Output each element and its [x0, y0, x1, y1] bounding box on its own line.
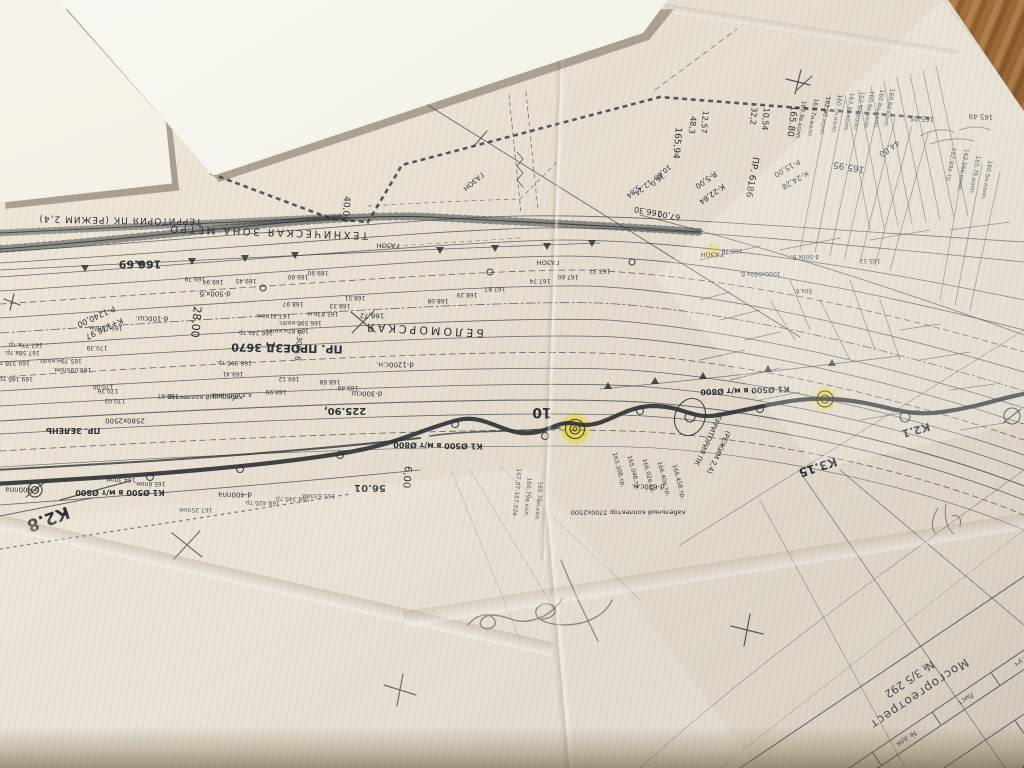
map-label: К-24,28 — [780, 169, 809, 190]
map-label: 6,00 — [400, 465, 412, 488]
paper-fold-highlight — [0, 0, 1024, 768]
map-label: 169.12 — [279, 375, 300, 381]
map-label: 165.04б.тр. — [625, 455, 640, 491]
map-label: 165.6пом. — [134, 480, 165, 486]
map-label: 168.33 — [330, 302, 351, 308]
map-label: К-22,84 — [698, 182, 726, 205]
stamp-header-row: ИзмКол.учЛист№ докПодпДата — [825, 626, 1024, 768]
map-label: ПР. 6186 — [743, 156, 759, 198]
stamp-values-row: 1300 — [783, 564, 1024, 768]
map-label: 168.42б.тр. — [244, 499, 280, 505]
map-label: 166.69 — [119, 259, 161, 270]
map-label: 163.30б.тр. — [610, 452, 625, 488]
title-block: ИзмКол.учЛист№ докПодпДата ИНЖЕНЕРНО-ТОП… — [647, 425, 1024, 768]
title-block-org: ИзмКол.учЛист№ докПодпДата Мосгоргеотрес… — [718, 541, 1024, 768]
map-label: 169.90 — [308, 269, 329, 275]
map-label: ГАЗОН — [461, 170, 484, 191]
map-label: d-300сш. — [350, 390, 383, 397]
map-label: 56.01 — [354, 482, 386, 492]
map-label: 166.79в.кол. — [522, 477, 531, 517]
map-label: К2.1 — [901, 421, 931, 439]
map-label: 166.40в.тр. — [655, 461, 670, 497]
map-label: 166.24в.тр. — [237, 329, 273, 335]
map-label: 164.82н.колп. — [265, 327, 309, 333]
map-label: d-100сш. — [136, 315, 169, 322]
map-label: 167.77в.тр. — [7, 341, 43, 347]
stamp-cell: Лист — [932, 673, 1000, 726]
stamp-cell: № док — [872, 713, 940, 766]
map-label: 167.25пом. — [177, 506, 212, 512]
map-label: 165.49 — [969, 112, 994, 120]
map-label: К2.8 — [24, 502, 71, 533]
map-label: 10 — [532, 405, 551, 419]
map-label: 162.9н.колп. — [852, 91, 865, 131]
map-label: 165.79н.колп. — [38, 357, 82, 363]
map-label: R-5,00 — [694, 170, 718, 190]
map-label: 165.83в.м — [308, 310, 339, 316]
stamp-document-number: № 3/5 292 — [882, 658, 937, 701]
map-label: Р-1240,00 — [76, 304, 116, 328]
plan-linework — [0, 0, 1024, 768]
map-label: 165.7б.колп. — [968, 155, 981, 195]
map-label: 166.30 — [634, 205, 663, 218]
map-label: 169.60 — [288, 273, 309, 279]
map-label: d-1200с.н. — [376, 361, 414, 368]
map-label: 163.7н.колп. — [806, 98, 819, 138]
map-label: 167.37 — [590, 267, 611, 273]
map-label: 168.68 — [320, 378, 341, 384]
map-label: 169.37б.тр. — [0, 359, 30, 365]
map-label: 50х.б. — [794, 287, 813, 293]
map-label: d-300х.б — [293, 329, 303, 361]
map-label: 170.00 — [93, 383, 114, 389]
stamp-header-row: ИзмКол.учЛист№ докПодпДата — [753, 592, 1024, 768]
plan-labels-major: ТЕРРИТОРИЯ ПК (РЕЖИМ 2,4)ТЕХНИЧЕСКАЯ ЗОН… — [0, 0, 1024, 768]
stamp-cell: 300 — [1015, 668, 1024, 733]
stamp-cell — [938, 721, 1024, 768]
map-label: 12,57 — [699, 110, 709, 134]
map-label: 168,72 — [360, 312, 385, 319]
stamp-cell: Подп — [813, 753, 881, 768]
map-label: d-400ппа — [218, 491, 252, 498]
map-label: ТЕРРИТОРИЯ ПК (РЕЖИМ 2,4) — [38, 213, 201, 225]
map-label: 165.12 — [860, 257, 881, 263]
map-label: 167.58в.тр. — [4, 349, 40, 355]
map-label: 225.90, — [324, 405, 366, 415]
map-label: К1 Ø500 в м/т Ø800 — [700, 384, 790, 395]
map-label: 167.07-167.02в — [511, 468, 521, 516]
paper-fold-highlight — [0, 0, 1024, 768]
map-label: ТЕРРИТОРИЯ ПК — [692, 410, 723, 466]
well-highlight-marker — [812, 386, 838, 412]
map-label: 160.9в.колп. — [862, 90, 875, 130]
map-label: 164.3пом. — [104, 476, 135, 482]
map-label: ПР. ПРОЕЗД 3670 — [231, 342, 343, 355]
map-label: 166.095пом. — [53, 366, 92, 372]
map-label: 67,00 — [657, 209, 681, 221]
map-label: 167.60 — [558, 273, 579, 279]
title-block-plan: ИзмКол.учЛист№ докПодпДата ИНЖЕНЕРНО-ТОП… — [782, 562, 1024, 768]
paper-crease — [538, 0, 568, 560]
well-highlight-marker — [703, 241, 721, 259]
map-label: 5,84 — [625, 183, 641, 198]
map-label: х.з.обочина — [212, 392, 252, 399]
map-label: ГАЗОН — [377, 242, 400, 249]
map-label: 169.67 — [158, 392, 179, 398]
stamp-cell: Кол.уч — [991, 633, 1024, 686]
map-label: 40,00 — [340, 196, 350, 222]
map-label: (РЕЖИМ 2,4) — [705, 430, 731, 475]
plan-sheet-paper: ТЕРРИТОРИЯ ПК (РЕЖИМ 2,4)ТЕХНИЧЕСКАЯ ЗОН… — [0, 0, 1024, 768]
paper-crease — [602, 0, 959, 58]
map-label: 163.9в.колп. — [794, 100, 807, 140]
map-label: 10,60 — [652, 163, 672, 181]
paper-crease — [403, 508, 1024, 627]
map-label: К+176.97 — [84, 316, 124, 340]
plan-labels-micro: 169.79169.94169.45169.60169.90169.19пом.… — [0, 0, 1024, 768]
map-label: ПР. ЗЕЛЕНЬ — [46, 426, 100, 434]
map-label: ГАЗОН — [701, 251, 724, 258]
map-label: 162.56в.колп. — [955, 148, 968, 192]
map-label: К1 Ø500 в м/т Ø800 — [75, 488, 164, 496]
map-label: 169.19пом. — [87, 324, 122, 330]
stamp-plan-title: ИНЖЕНЕРНО-ТОПОГРАФИЧЕСКИЙ ПЛАН — [944, 690, 1024, 768]
well-highlight-marker — [558, 412, 592, 446]
paper-crease — [0, 508, 554, 657]
map-label: 162.9б.колп. — [818, 96, 831, 136]
map-label: d-630с.н. — [631, 483, 664, 490]
map-label: К1 Ø500 в м/т Ø800 — [393, 440, 483, 450]
map-label: 160.7н.колп. — [830, 94, 843, 134]
map-label: 165.05 — [910, 114, 935, 122]
map-label: 169.16б.тр. — [0, 375, 33, 381]
map-label: 166.02в.тр. — [640, 458, 655, 494]
map-label: 1000х950х.б. — [739, 270, 780, 276]
map-label: 160.5н.колп. — [980, 160, 993, 200]
map-label: 169.49 — [338, 384, 359, 390]
map-label: Р-15,00 — [773, 158, 802, 179]
map-label: 169.41 — [223, 370, 244, 376]
photo-scene: ТЕРРИТОРИЯ ПК (РЕЖИМ 2,4)ТЕХНИЧЕСКАЯ ЗОН… — [0, 0, 1024, 768]
map-label: 36,0 — [649, 171, 665, 186]
paper-edge-shadow — [0, 726, 1024, 768]
map-label: 168.51 — [345, 294, 366, 300]
map-label: 170.26 — [98, 387, 119, 393]
handwritten-signature — [468, 560, 612, 641]
stamp-organization: Мосгоргеотрест — [867, 656, 971, 733]
map-label: 167.74 — [530, 277, 551, 283]
map-label: 168.99 — [266, 388, 287, 394]
map-label: 160.6в.колп. — [882, 88, 895, 128]
map-label: 165,94 — [670, 127, 682, 159]
handwritten-pencil-note — [0, 90, 990, 534]
map-label: кабельный коллектор — [167, 394, 243, 401]
map-label: 168.34б.тр. — [274, 495, 310, 501]
map-label: 170.02 — [105, 397, 126, 403]
map-label: 169.45 — [236, 277, 257, 283]
map-label: 165.63пом. — [300, 492, 335, 498]
map-label: 165.80 — [785, 105, 798, 137]
map-label: 32,2 — [748, 107, 758, 125]
map-label: 165.95 — [833, 159, 866, 173]
map-label: d-500х.б. — [197, 290, 230, 297]
map-label: ТЕХНИЧЕСКАЯ ЗОНА МЕТРО — [168, 223, 369, 240]
map-label: ГАЗОН — [537, 259, 560, 266]
map-label: 167.31пом. — [255, 312, 290, 318]
map-label: 163.3в.колп. — [842, 92, 855, 132]
map-label: 166.99б.тр. — [216, 359, 252, 365]
map-label: 169.79 — [185, 275, 206, 281]
map-label: К3.15 — [797, 455, 838, 479]
map-label: БЕЛОМОРСКАЯ — [364, 321, 484, 338]
map-label: 166.45б.тр. — [670, 464, 685, 500]
map-label: 165.78н.кол. — [533, 481, 542, 521]
map-label: d-500х.б. — [791, 253, 820, 259]
map-label: 160.8н.колп. — [872, 89, 885, 129]
map-label: 12,24 — [633, 178, 653, 196]
map-label: 168.08 — [428, 297, 449, 303]
map-label: 166.59б.колп. — [278, 319, 322, 325]
map-label: 44,00 — [877, 138, 900, 158]
paper-crease — [541, 510, 576, 768]
map-label: 167.87 — [485, 285, 506, 291]
map-label: 168.29 — [457, 291, 478, 297]
map-label: 28,00 — [189, 306, 203, 338]
map-label: 169.94 — [203, 278, 224, 284]
map-label: 165.79 — [722, 247, 743, 253]
map-label: 48,3 — [687, 116, 697, 134]
map-label: 168.97 — [283, 300, 304, 306]
map-label: 2580х2500 — [105, 417, 145, 424]
map-label: 162.89в.тр. — [944, 147, 956, 183]
map-label: кабельный коллектор 3700х2500 — [571, 509, 686, 516]
map-label: о-400ппа — [5, 486, 39, 493]
map-label: 10,54 — [760, 107, 770, 131]
map-label: 170.39 — [87, 344, 108, 350]
